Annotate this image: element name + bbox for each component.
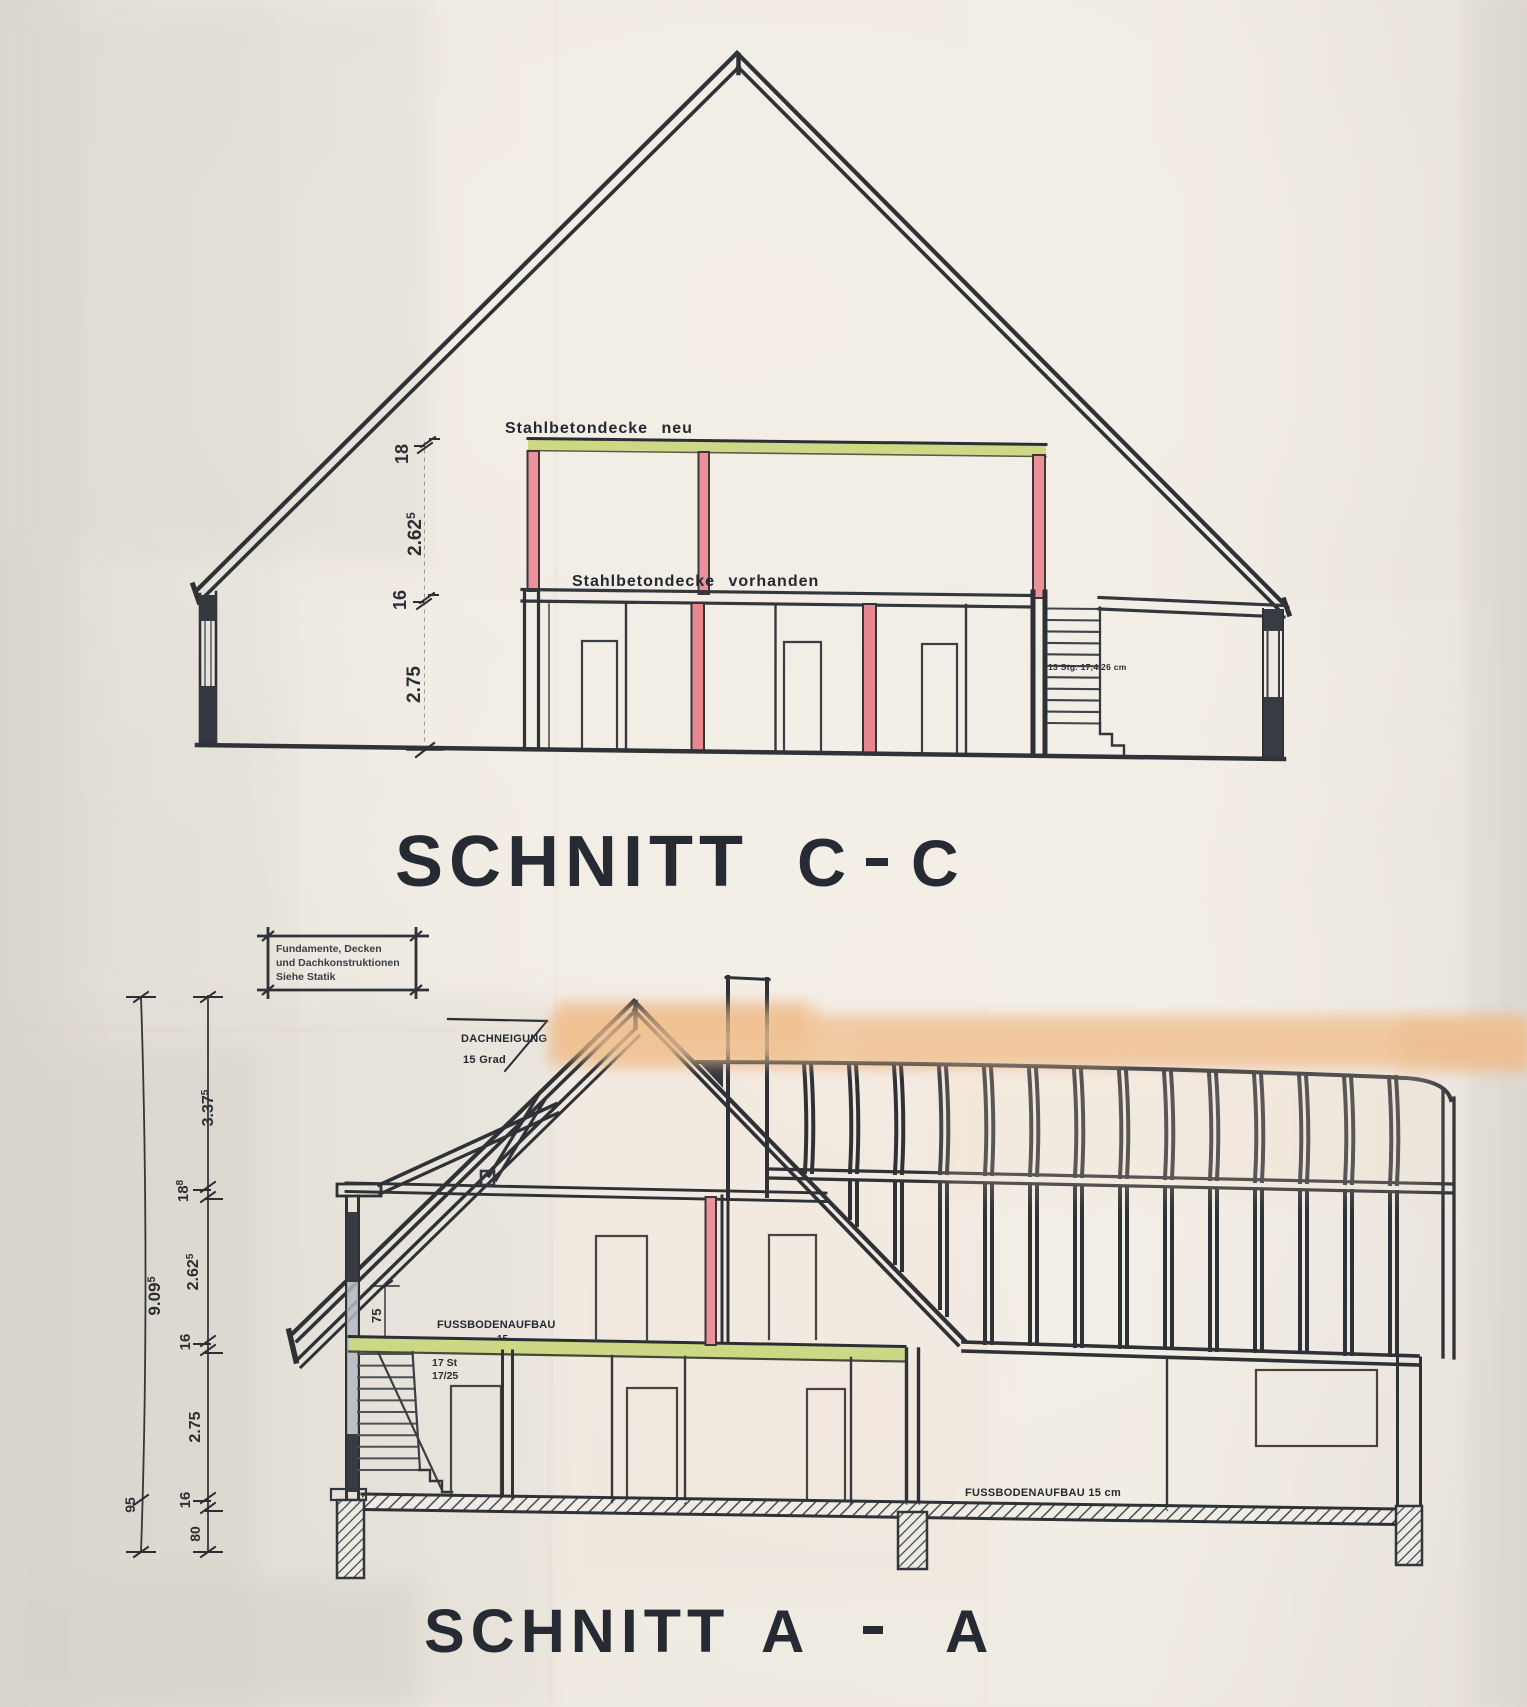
svg-text:Stahlbetondecke neu: Stahlbetondecke neu [505,420,693,437]
svg-text:A: A [761,1598,810,1665]
svg-text:16: 16 [177,1492,194,1509]
svg-text:SCHNITT: SCHNITT [395,822,749,902]
svg-text:80: 80 [187,1526,203,1542]
svg-text:2.75: 2.75 [404,666,425,703]
svg-text:FUSSBODENAUFBAU: FUSSBODENAUFBAU [437,1319,556,1331]
svg-text:15 Grad: 15 Grad [463,1054,506,1066]
svg-text:75: 75 [369,1309,384,1323]
svg-text:18: 18 [392,444,412,464]
svg-text:17/25: 17/25 [432,1370,458,1382]
svg-text:Siehe Statik: Siehe Statik [276,971,336,983]
svg-text:95: 95 [122,1497,138,1513]
svg-text:17 St: 17 St [432,1357,458,1369]
svg-text:16: 16 [390,590,410,610]
svg-text:SCHNITT: SCHNITT [424,1597,730,1665]
svg-text:C: C [911,826,965,900]
svg-text:16: 16 [177,1334,194,1351]
svg-text:Fundamente, Decken: Fundamente, Decken [276,943,382,955]
svg-text:FUSSBODENAUFBAU 15 cm: FUSSBODENAUFBAU 15 cm [965,1487,1121,1499]
svg-text:und Dachkonstruktionen: und Dachkonstruktionen [276,957,400,969]
svg-text:A: A [945,1598,994,1665]
svg-text:2.75: 2.75 [187,1411,204,1442]
svg-text:13 Stg. 17,4/26 cm: 13 Stg. 17,4/26 cm [1048,662,1127,672]
svg-text:C: C [797,825,852,901]
svg-text:Stahlbetondecke vorhanden: Stahlbetondecke vorhanden [572,573,819,590]
